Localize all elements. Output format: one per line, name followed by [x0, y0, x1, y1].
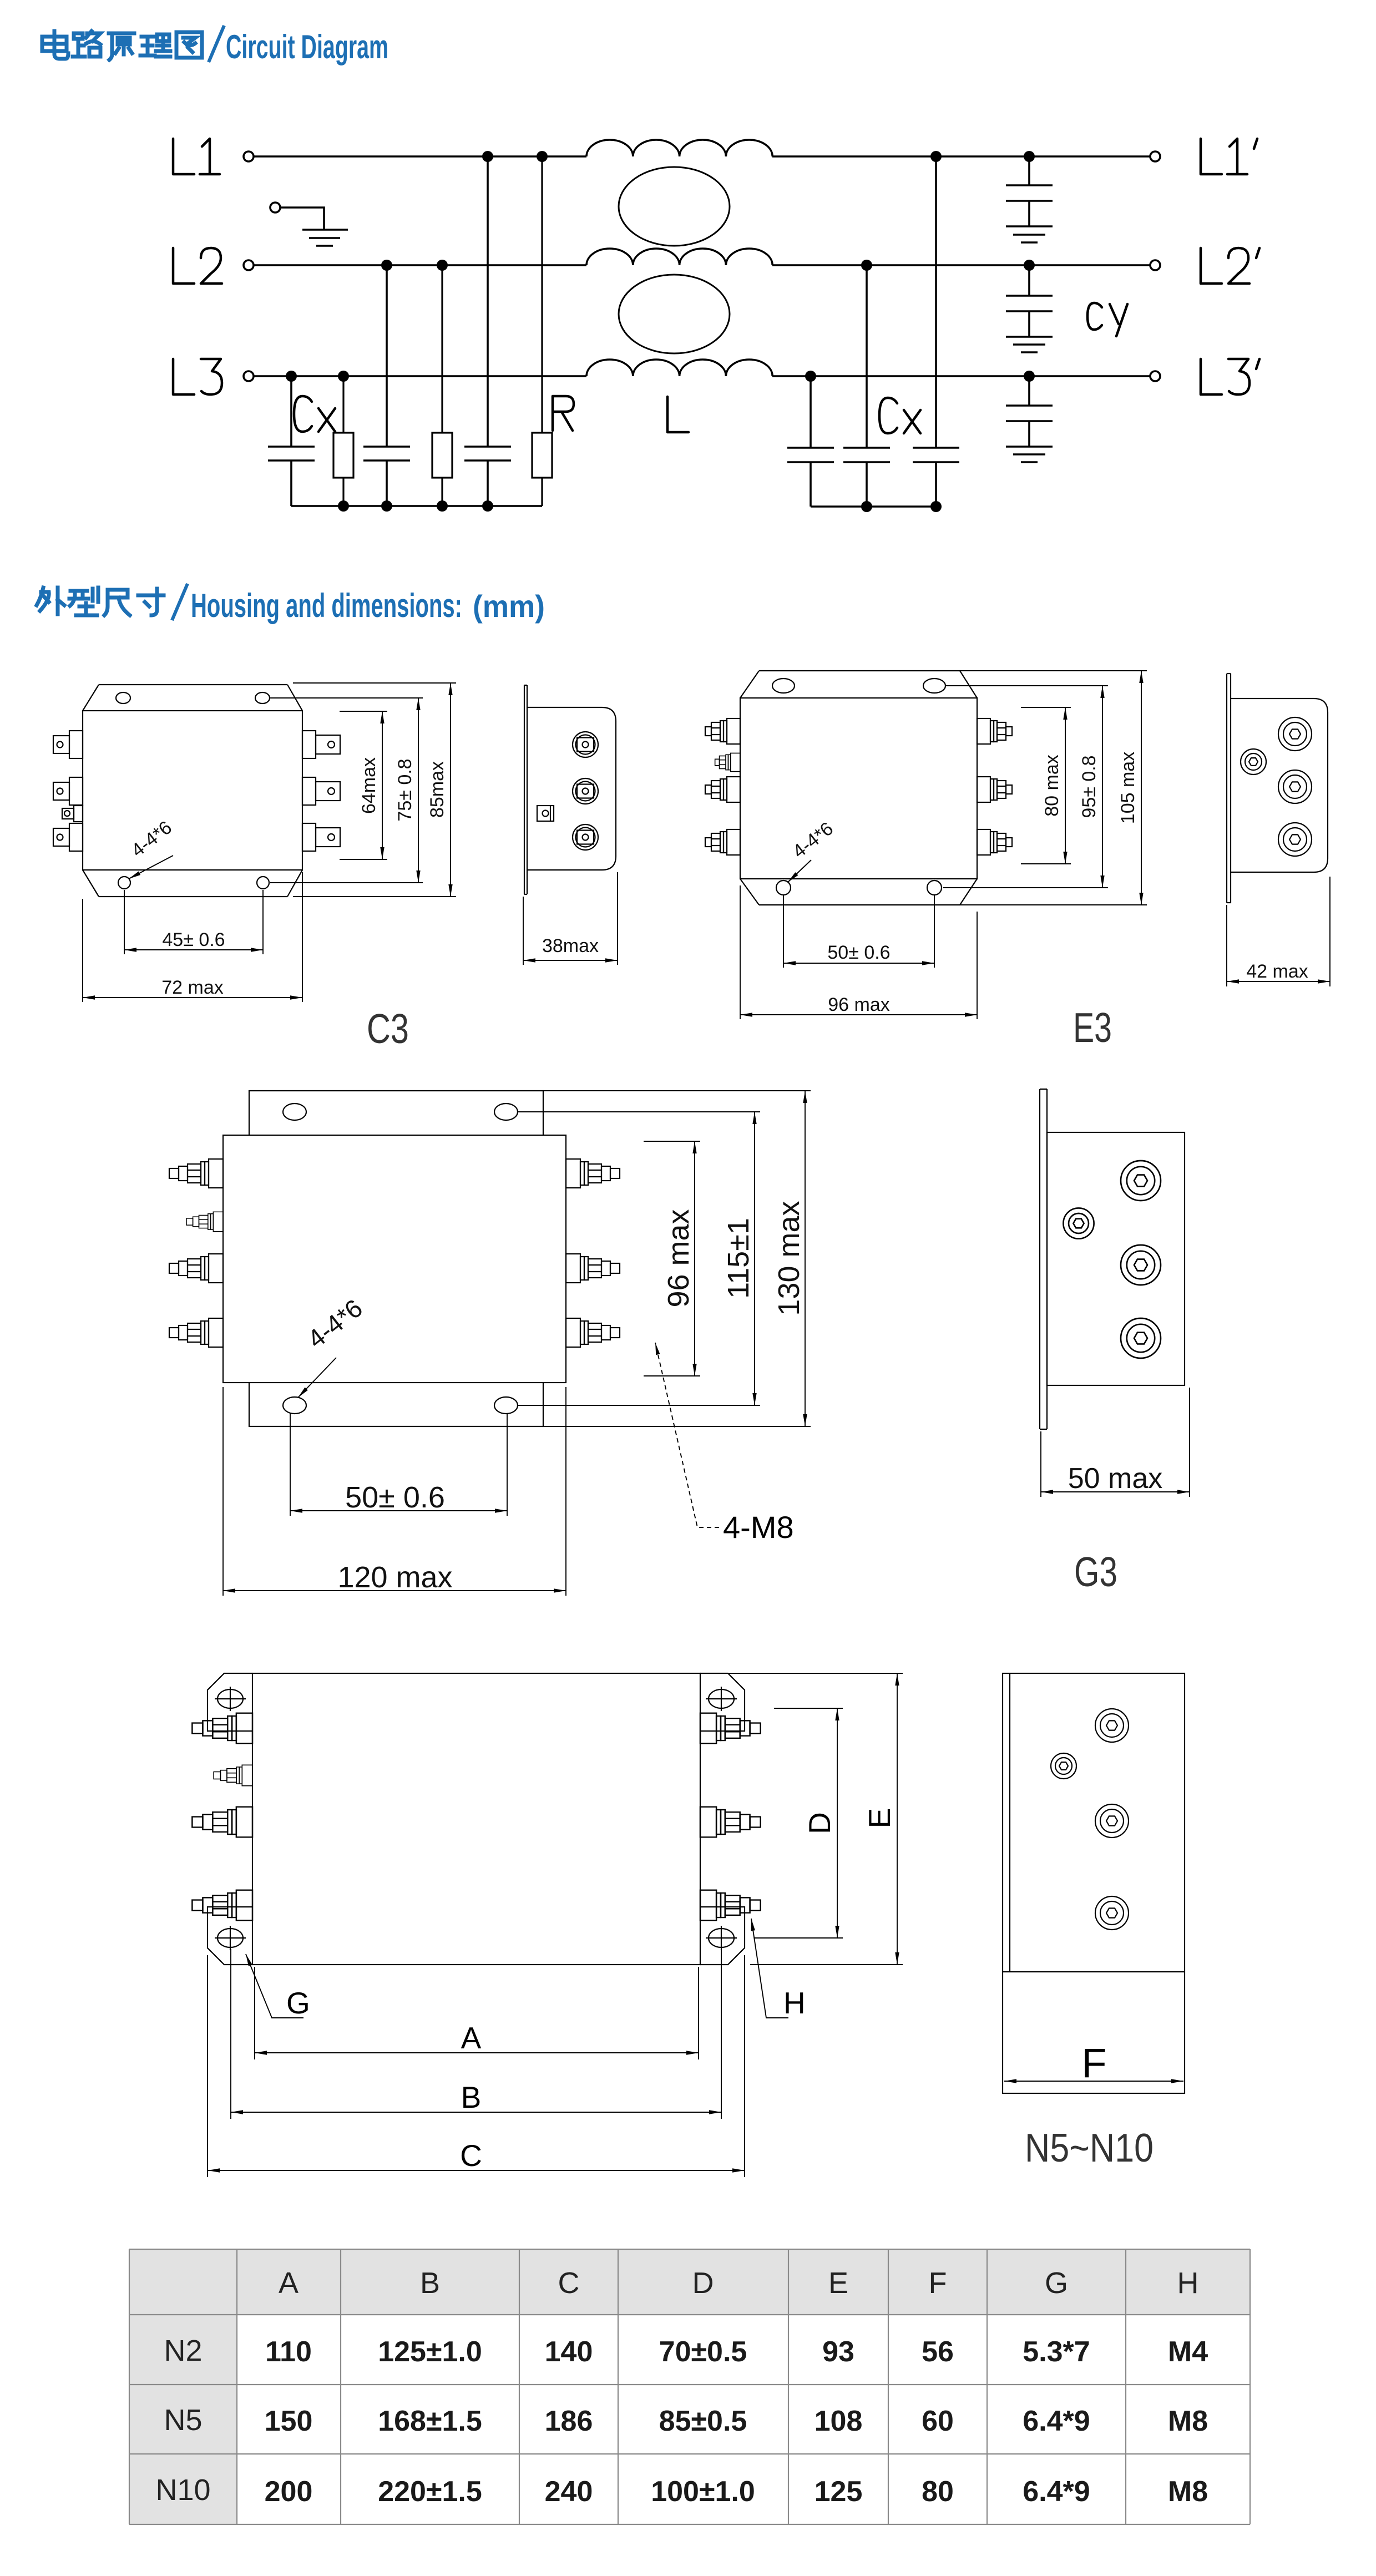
svg-text:50 max: 50 max — [1068, 1462, 1163, 1495]
svg-text:72 max: 72 max — [161, 977, 224, 998]
svg-text:93: 93 — [822, 2336, 854, 2368]
svg-text:220±1.5: 220±1.5 — [378, 2476, 482, 2508]
svg-text:60: 60 — [922, 2405, 954, 2437]
svg-text:H: H — [1177, 2266, 1199, 2300]
svg-text:(mm): (mm) — [473, 589, 545, 624]
svg-text:45± 0.6: 45± 0.6 — [162, 929, 225, 950]
svg-text:96 max: 96 max — [828, 994, 890, 1015]
svg-text:125: 125 — [815, 2476, 863, 2508]
svg-text:A: A — [279, 2266, 299, 2300]
svg-text:108: 108 — [815, 2405, 863, 2437]
svg-text:D: D — [802, 1812, 837, 1834]
svg-text:4-M8: 4-M8 — [723, 1510, 794, 1545]
svg-text:5.3*7: 5.3*7 — [1023, 2336, 1090, 2368]
svg-text:G3: G3 — [1074, 1548, 1117, 1595]
svg-text:Housing and dimensions:: Housing and dimensions: — [191, 587, 462, 624]
svg-text:70±0.5: 70±0.5 — [659, 2336, 747, 2368]
svg-text:6.4*9: 6.4*9 — [1023, 2476, 1090, 2508]
svg-text:N5: N5 — [164, 2403, 202, 2437]
svg-text:D: D — [692, 2266, 714, 2300]
svg-text:168±1.5: 168±1.5 — [378, 2405, 482, 2437]
svg-text:80 max: 80 max — [1041, 755, 1063, 817]
svg-text:85±0.5: 85±0.5 — [659, 2405, 747, 2437]
svg-text:Circuit Diagram: Circuit Diagram — [226, 28, 388, 65]
svg-text:105 max: 105 max — [1117, 752, 1139, 824]
svg-text:M8: M8 — [1168, 2405, 1208, 2437]
svg-text:64max: 64max — [358, 757, 380, 814]
svg-text:C3: C3 — [367, 1005, 409, 1052]
svg-text:115±1: 115±1 — [722, 1218, 755, 1299]
svg-text:C: C — [460, 2138, 482, 2173]
svg-text:42 max: 42 max — [1246, 961, 1308, 982]
svg-text:E: E — [862, 1808, 897, 1829]
svg-text:G: G — [286, 1986, 310, 2020]
svg-text:110: 110 — [265, 2336, 312, 2368]
svg-text:B: B — [461, 2080, 482, 2114]
svg-text:80: 80 — [922, 2476, 954, 2508]
svg-text:G: G — [1045, 2266, 1068, 2300]
svg-text:85max: 85max — [427, 761, 448, 818]
svg-text:50± 0.6: 50± 0.6 — [345, 1481, 445, 1514]
svg-text:96 max: 96 max — [662, 1209, 695, 1307]
svg-text:F: F — [929, 2266, 947, 2300]
svg-text:N5~N10: N5~N10 — [1025, 2126, 1154, 2170]
svg-text:38max: 38max — [542, 935, 599, 956]
svg-text:186: 186 — [545, 2405, 593, 2437]
svg-text:E3: E3 — [1073, 1004, 1112, 1051]
svg-text:200: 200 — [265, 2476, 313, 2508]
svg-text:M8: M8 — [1168, 2476, 1208, 2508]
svg-text:240: 240 — [545, 2476, 593, 2508]
svg-text:120 max: 120 max — [337, 1561, 452, 1594]
svg-text:130 max: 130 max — [772, 1201, 806, 1315]
svg-text:B: B — [420, 2266, 440, 2300]
svg-text:F: F — [1081, 2040, 1106, 2086]
svg-text:50± 0.6: 50± 0.6 — [827, 942, 890, 963]
svg-text:75± 0.8: 75± 0.8 — [394, 758, 416, 821]
svg-text:M4: M4 — [1168, 2336, 1208, 2368]
svg-text:6.4*9: 6.4*9 — [1023, 2405, 1090, 2437]
svg-text:E: E — [828, 2266, 848, 2300]
svg-text:140: 140 — [545, 2336, 593, 2368]
svg-text:A: A — [461, 2021, 482, 2055]
svg-text:C: C — [558, 2266, 580, 2300]
svg-text:95± 0.8: 95± 0.8 — [1079, 755, 1100, 818]
svg-text:N10: N10 — [155, 2473, 210, 2507]
svg-text:100±1.0: 100±1.0 — [651, 2476, 755, 2508]
svg-text:150: 150 — [265, 2405, 313, 2437]
svg-text:N2: N2 — [164, 2334, 202, 2367]
svg-text:125±1.0: 125±1.0 — [378, 2336, 482, 2368]
svg-text:H: H — [783, 1986, 806, 2020]
svg-text:56: 56 — [922, 2336, 954, 2368]
